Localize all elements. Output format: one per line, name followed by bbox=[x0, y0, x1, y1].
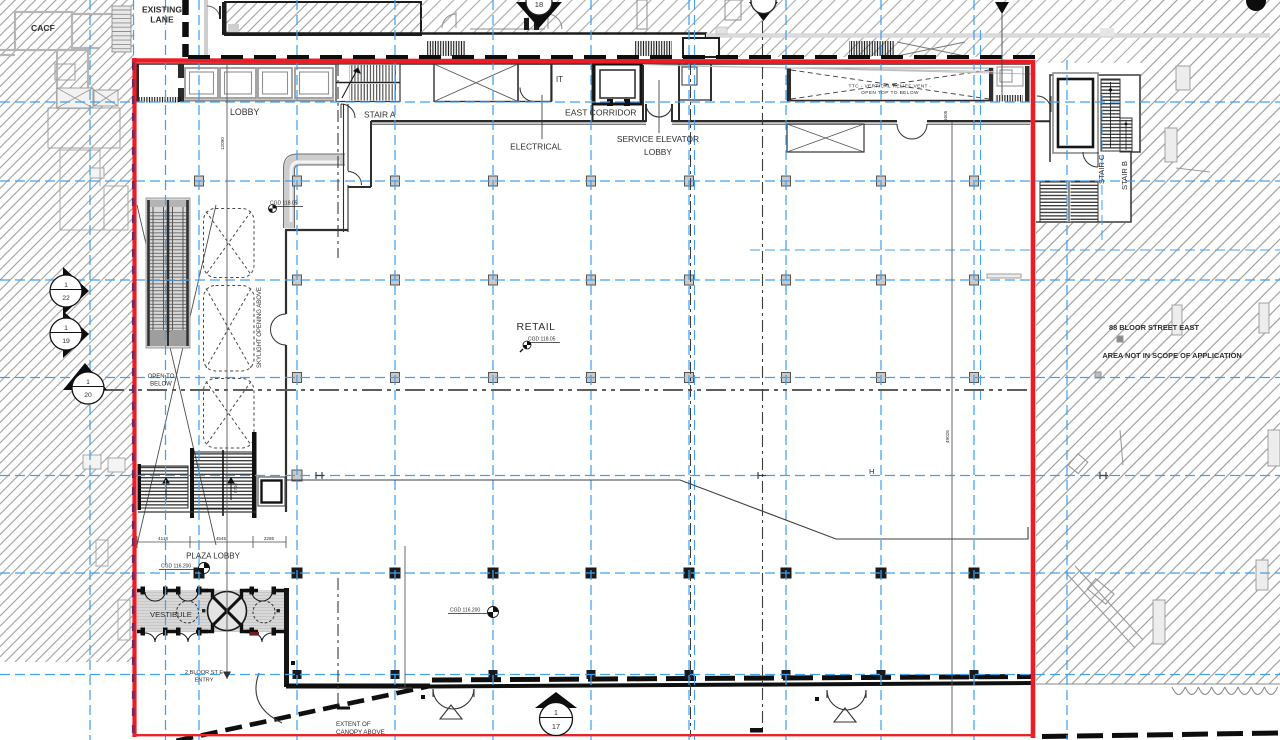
svg-text:88 BLOOR STREET EAST: 88 BLOOR STREET EAST bbox=[1109, 323, 1199, 332]
svg-text:49026: 49026 bbox=[945, 430, 950, 443]
svg-text:CANOPY ABOVE: CANOPY ABOVE bbox=[336, 729, 385, 736]
svg-text:BELOW: BELOW bbox=[150, 382, 172, 388]
svg-text:LOBBY: LOBBY bbox=[644, 147, 672, 157]
svg-text:CGD 118.05: CGD 118.05 bbox=[270, 201, 298, 207]
svg-text:1: 1 bbox=[64, 325, 68, 332]
svg-text:CGD 118.05: CGD 118.05 bbox=[528, 337, 556, 343]
svg-text:2265: 2265 bbox=[264, 536, 275, 541]
svg-text:RETAIL: RETAIL bbox=[517, 321, 556, 333]
svg-text:5706: 5706 bbox=[233, 483, 238, 493]
svg-text:1: 1 bbox=[86, 379, 90, 386]
svg-text:19: 19 bbox=[62, 338, 70, 345]
svg-text:CACF: CACF bbox=[31, 23, 55, 33]
svg-text:PLAZA LOBBY: PLAZA LOBBY bbox=[186, 552, 240, 561]
svg-text:STAIR C: STAIR C bbox=[1097, 154, 1106, 184]
svg-text:12090: 12090 bbox=[220, 137, 225, 150]
svg-text:4118: 4118 bbox=[158, 536, 168, 541]
svg-text:1: 1 bbox=[554, 710, 558, 717]
svg-text:EXTENT OF: EXTENT OF bbox=[336, 721, 371, 728]
svg-text:SERVICE ELEVATOR: SERVICE ELEVATOR bbox=[617, 134, 699, 144]
svg-text:20: 20 bbox=[84, 392, 92, 399]
svg-text:LOBBY: LOBBY bbox=[230, 107, 259, 117]
svg-text:OPEN TOP TO BELOW: OPEN TOP TO BELOW bbox=[861, 90, 919, 96]
svg-text:EXISTING: EXISTING bbox=[142, 5, 182, 15]
svg-text:LANE: LANE bbox=[150, 15, 174, 25]
svg-text:ELECTRICAL: ELECTRICAL bbox=[510, 142, 562, 152]
svg-text:SKYLIGHT OPENING ABOVE: SKYLIGHT OPENING ABOVE bbox=[257, 287, 263, 368]
svg-text:2 BLOOR ST E: 2 BLOOR ST E bbox=[185, 670, 223, 676]
svg-text:H: H bbox=[869, 467, 874, 476]
svg-text:22: 22 bbox=[62, 295, 70, 302]
svg-text:17: 17 bbox=[552, 722, 560, 731]
svg-text:18: 18 bbox=[535, 0, 543, 9]
svg-text:AREA NOT IN SCOPE OF APPLICATI: AREA NOT IN SCOPE OF APPLICATION bbox=[1102, 351, 1241, 360]
svg-text:1: 1 bbox=[64, 282, 68, 289]
svg-text:VESTIBULE: VESTIBULE bbox=[150, 610, 192, 619]
svg-text:OPEN TO: OPEN TO bbox=[148, 374, 175, 380]
svg-text:4545: 4545 bbox=[216, 536, 227, 541]
svg-text:ENTRY: ENTRY bbox=[195, 678, 214, 684]
svg-text:STAIR A: STAIR A bbox=[364, 110, 396, 120]
svg-text:1605: 1605 bbox=[943, 110, 948, 121]
svg-text:CGD 116.200: CGD 116.200 bbox=[161, 564, 191, 570]
svg-text:CGD 116.200: CGD 116.200 bbox=[450, 608, 480, 614]
svg-text:STAIR B: STAIR B bbox=[1120, 161, 1129, 190]
svg-text:EAST CORRIDOR: EAST CORRIDOR bbox=[565, 108, 636, 118]
svg-text:IT: IT bbox=[556, 75, 563, 84]
svg-text:TTC - VERTICAL RELIEF VENT -: TTC - VERTICAL RELIEF VENT - bbox=[848, 84, 931, 90]
